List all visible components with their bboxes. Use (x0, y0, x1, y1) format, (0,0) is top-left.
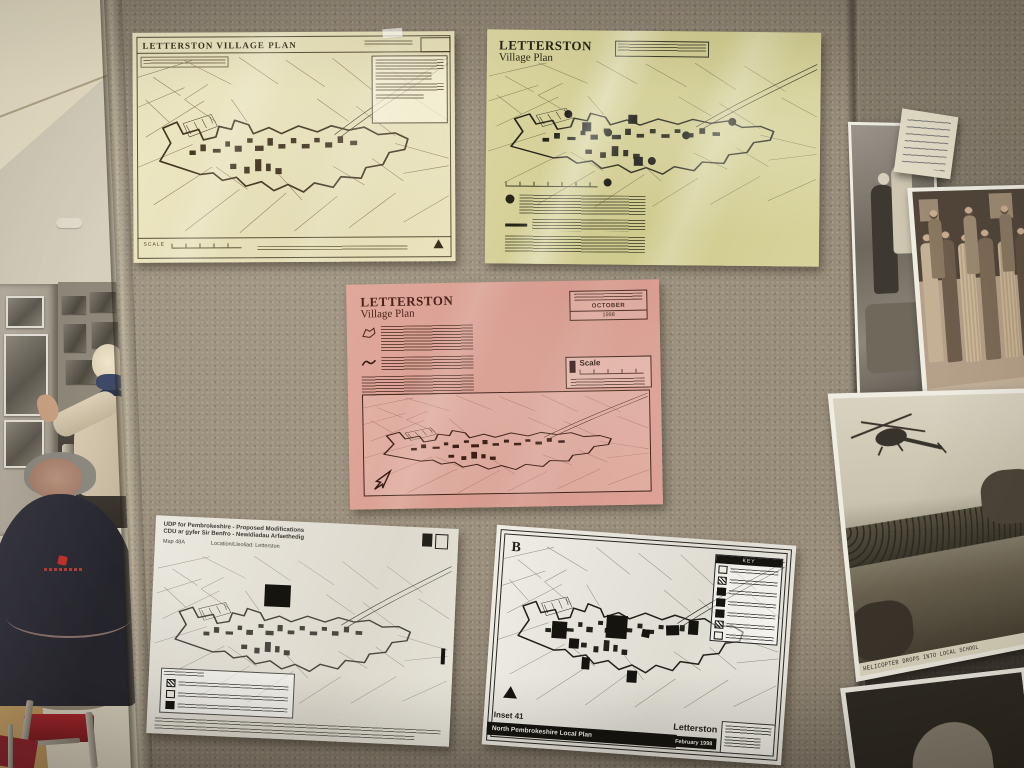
key-text (730, 579, 778, 586)
map-location: Location/Lleoliad: Letterston (211, 541, 280, 550)
note-box (615, 41, 709, 58)
date-box-note (574, 293, 642, 301)
legend-title (164, 671, 204, 677)
legend-solid-swatch (165, 700, 174, 708)
key-swatch (715, 609, 725, 618)
parcel-icon (361, 326, 376, 339)
legend-outline-swatch (166, 689, 175, 697)
chair-leg (85, 712, 98, 768)
photo-helicopter: HELICOPTER DROPS INTO LOCAL SCHOOL (828, 388, 1024, 682)
allocation-block (551, 621, 567, 639)
site-number-marker (564, 110, 572, 118)
key-swatch (717, 587, 727, 596)
map-title-block: LETTERSTON Village Plan (360, 293, 453, 321)
date-box: OCTOBER 1998 (569, 289, 648, 320)
map-header: UDP for Pembrokeshire - Proposed Modific… (163, 522, 374, 555)
key-box: KEY (709, 554, 783, 646)
chair-cushion (24, 714, 94, 742)
photo-content (912, 188, 1024, 404)
allocation-block (641, 629, 650, 638)
key-swatch (718, 565, 728, 574)
legend-box (159, 668, 295, 719)
site-number-marker (682, 131, 690, 139)
scale-label: Scale (579, 358, 600, 367)
map-sheet-inset41: B KEY Inset 41 Letterston North Pembroke… (482, 525, 797, 765)
council-logo-icon (422, 533, 433, 546)
north-arrow-icon (370, 469, 394, 491)
ceiling-vent (56, 218, 82, 228)
map-ref: Map 48A (163, 539, 185, 546)
map-sheet-udp: UDP for Pembrokeshire - Proposed Modific… (146, 515, 459, 747)
jacket-logo-icon (57, 555, 68, 566)
map-sheet-yellow: LETTERSTON Village Plan (485, 29, 821, 266)
second-chair-cushion (0, 735, 38, 768)
handwritten-note (894, 108, 959, 179)
scale-bar (172, 243, 242, 248)
figure-head (878, 173, 890, 185)
plan-date: February 1998 (675, 738, 713, 747)
council-logo-icon (435, 534, 449, 550)
note-text (381, 325, 473, 353)
key-swatch (714, 631, 724, 640)
map-linework (363, 390, 651, 495)
scale-label: SCALE (143, 242, 164, 248)
jacket-logo-text (44, 568, 82, 571)
site-square-marker (628, 115, 637, 124)
allocation-block (569, 638, 580, 649)
legend-text (505, 235, 645, 252)
monument-icon (503, 686, 518, 699)
key-text (726, 623, 774, 630)
legend-circle-icon (505, 194, 514, 203)
map-sheet-pink: LETTERSTON Village Plan OCTOBER 1998 Sca… (346, 279, 663, 509)
handwriting (901, 116, 951, 171)
site-number-marker (604, 128, 612, 136)
arch-shape (908, 717, 997, 768)
site-number-marker (728, 118, 736, 126)
scale-icon (569, 361, 575, 373)
note-text (381, 356, 473, 372)
key-text (726, 634, 774, 641)
site-square-marker (634, 157, 643, 166)
panel-photo (6, 296, 44, 328)
rocks (865, 302, 924, 374)
allocation-block (581, 657, 590, 670)
tape (382, 28, 403, 38)
scale-bar (580, 369, 644, 375)
site-number-marker (648, 157, 656, 165)
key-text (727, 612, 775, 619)
scale-box: Scale (565, 355, 652, 388)
key-text (728, 601, 776, 608)
scale-tick (441, 648, 446, 664)
allocation-block (666, 625, 679, 635)
jacket-piping (6, 596, 132, 638)
helicopter-silhouette (840, 402, 962, 479)
key-text (730, 568, 778, 575)
legend-hatched-swatch (166, 678, 175, 686)
council-logo-box (720, 721, 776, 757)
key-swatch (717, 576, 727, 585)
legend-area (505, 181, 646, 258)
north-arrow-icon (433, 239, 443, 248)
scale-fineprint (571, 378, 645, 386)
map-title: LETTERSTON VILLAGE PLAN (142, 40, 296, 51)
title-bar-note (364, 40, 412, 46)
legend-box (372, 55, 448, 123)
notes-column (361, 325, 474, 397)
legend-text (519, 195, 645, 216)
key-text (729, 590, 777, 597)
allocation-block (688, 620, 699, 635)
boundary-icon (361, 357, 376, 368)
plan-number-box (420, 37, 450, 52)
chair-leg (8, 724, 13, 768)
map-sheet-cream: LETTERSTON VILLAGE PLAN SCALE (132, 31, 455, 263)
allocation-block (605, 615, 628, 639)
date-year: 1998 (571, 311, 647, 320)
wall-photo (62, 296, 86, 314)
allocation-block (626, 670, 637, 683)
legend-text (177, 703, 287, 712)
site-square-marker (582, 122, 591, 131)
key-swatch (716, 598, 726, 607)
legend-line-icon (505, 223, 527, 226)
map-footer: SCALE (137, 236, 451, 259)
scale-bar (506, 181, 598, 187)
map-inset (362, 389, 652, 496)
legend-text (532, 219, 645, 232)
footer-fineprint (258, 245, 408, 250)
photo-group-of-women (907, 185, 1024, 422)
wall-photo (64, 324, 86, 352)
photo-content (845, 672, 1024, 768)
proposed-site-block (264, 584, 291, 607)
key-swatch (714, 620, 724, 629)
photo-content: HELICOPTER DROPS INTO LOCAL SCHOOL (833, 393, 1024, 676)
photo-scene: LETTERSTON VILLAGE PLAN SCALE LETTERSTON… (0, 0, 1024, 768)
seated-man-head (30, 458, 82, 498)
